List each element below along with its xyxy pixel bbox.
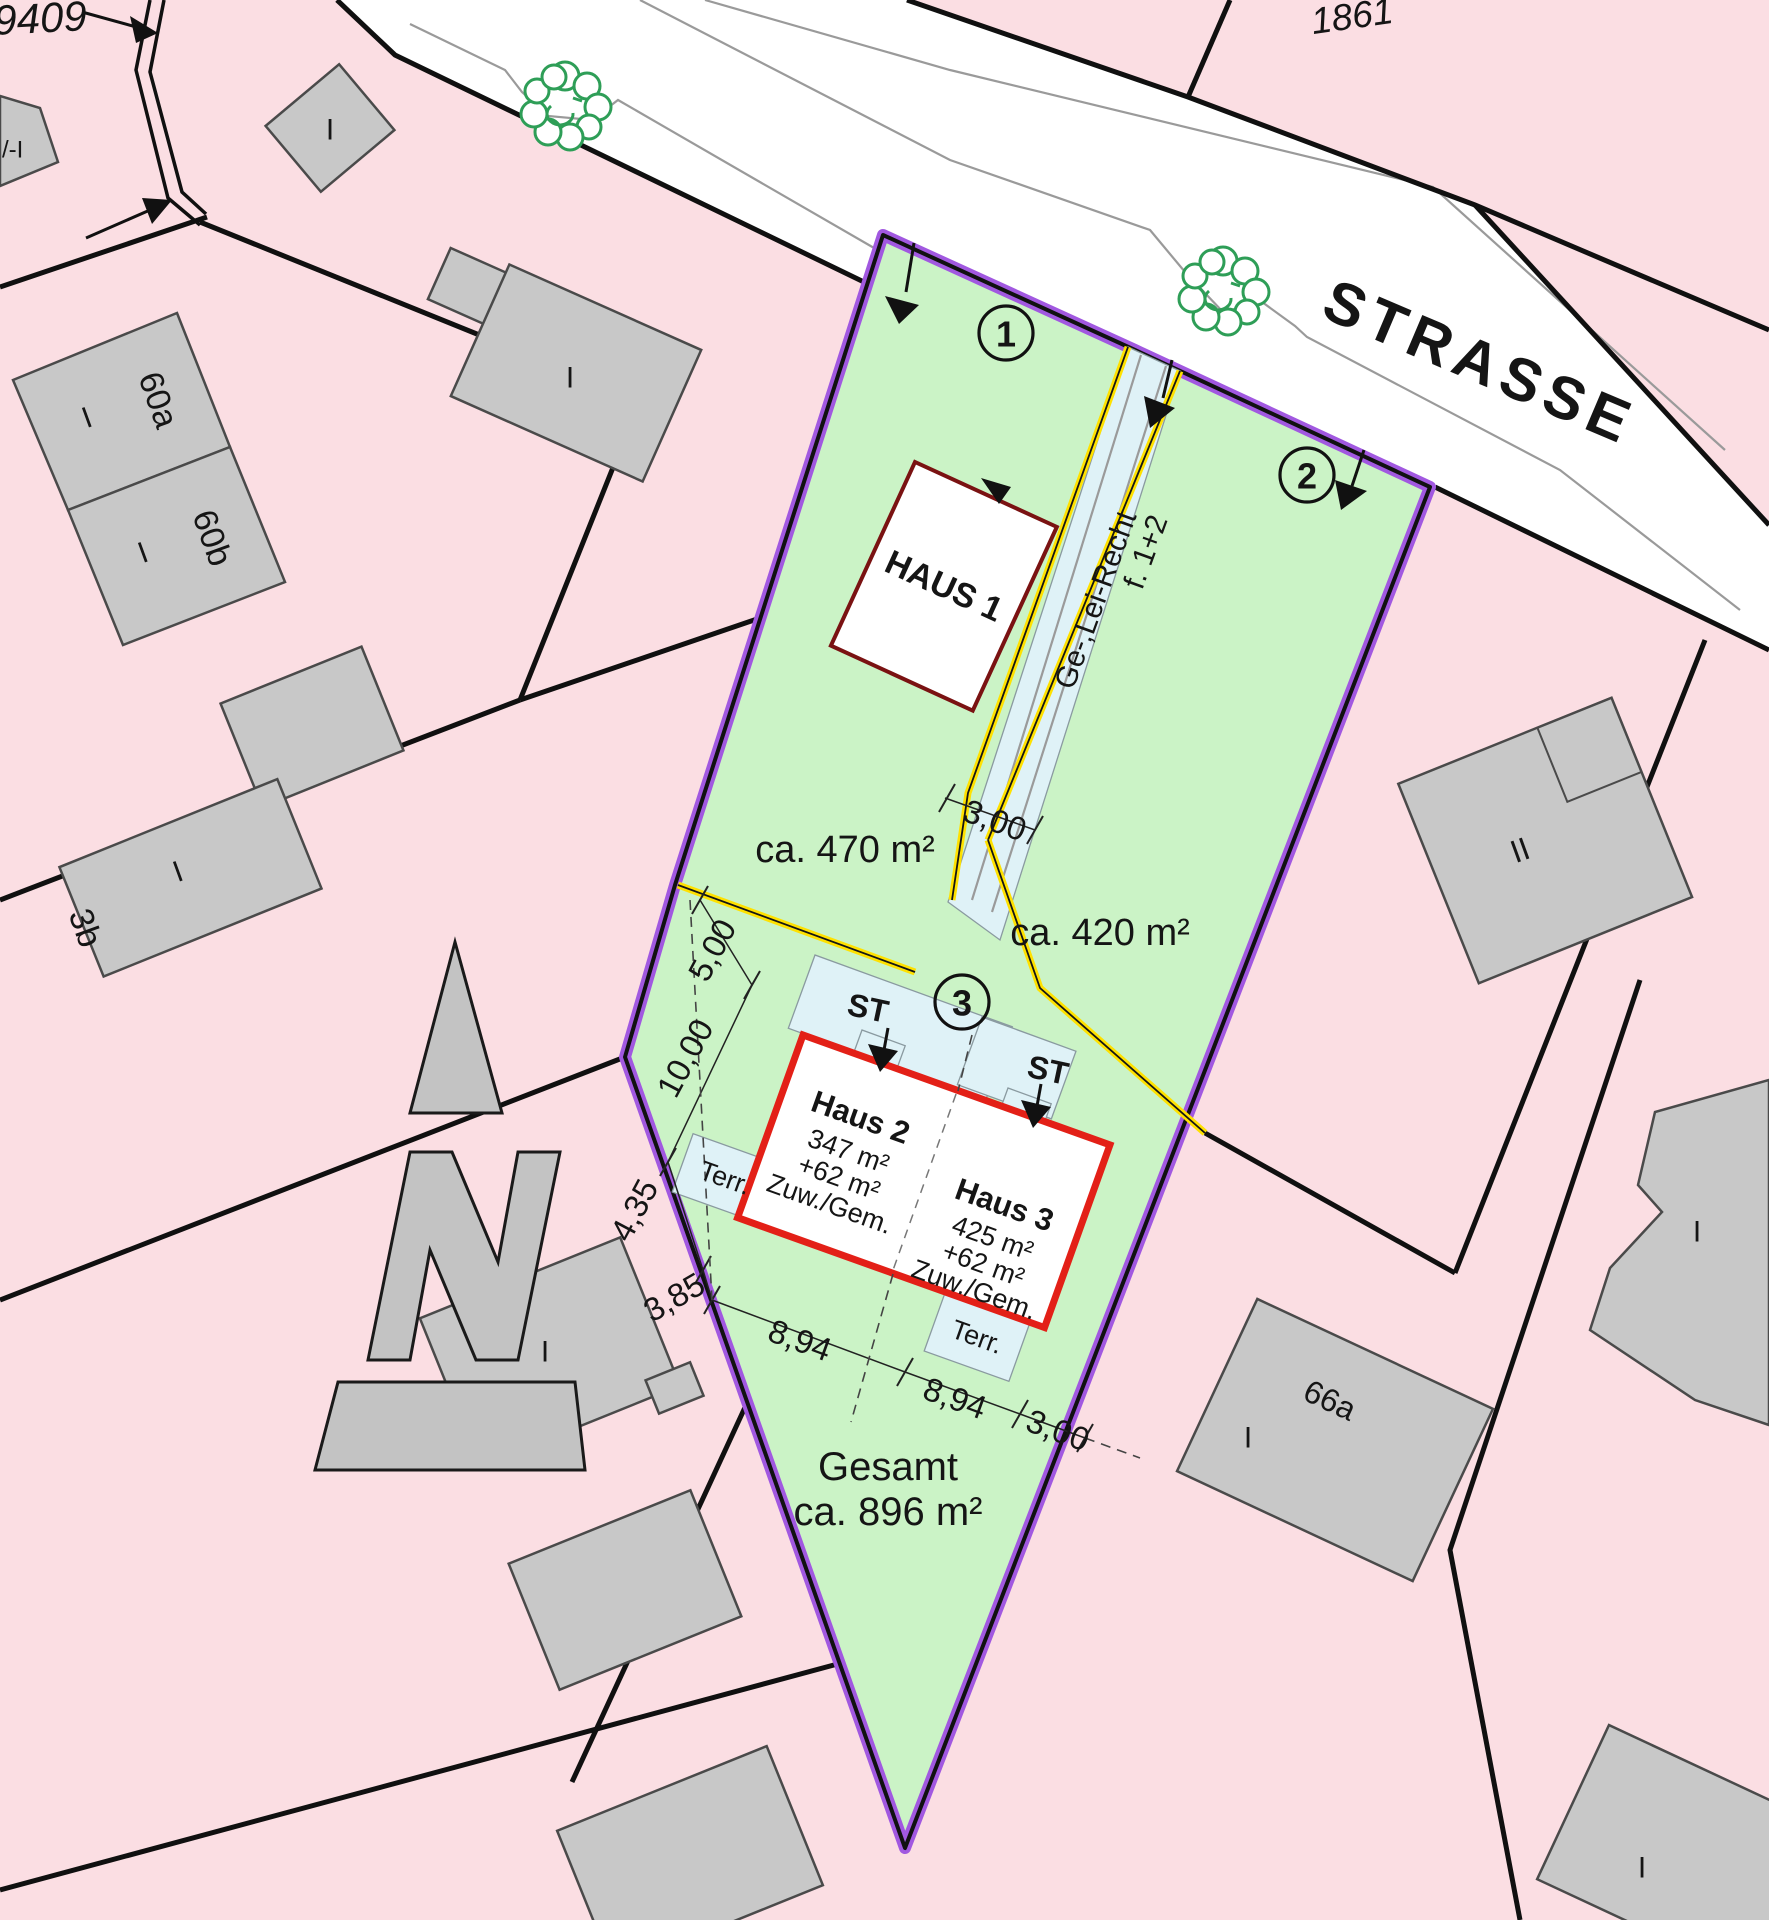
plot2-area-label: ca. 420 m² xyxy=(1010,912,1190,954)
storey-bighouse: I xyxy=(566,362,574,395)
svg-text:2: 2 xyxy=(1297,456,1317,497)
storey-nw: I xyxy=(326,114,334,147)
total-area-label: ca. 896 m² xyxy=(794,1490,983,1534)
storey-right-edge: I xyxy=(1693,1216,1701,1249)
svg-text:3: 3 xyxy=(952,983,972,1024)
site-plan: HAUS 1 Haus 2 347 m² +62 m² Zuw./Gem. Ha… xyxy=(0,0,1769,1920)
total-label: Gesamt xyxy=(818,1445,958,1489)
parcel-number-9409: 9409 xyxy=(0,0,88,44)
plot1-area-label: ca. 470 m² xyxy=(755,829,935,871)
storey-sw1: I xyxy=(541,1336,549,1369)
storey-se: I xyxy=(1638,1852,1646,1885)
svg-text:1: 1 xyxy=(996,314,1016,355)
storey-66a: I xyxy=(1244,1422,1252,1455)
label-partial: /-I xyxy=(2,137,23,164)
